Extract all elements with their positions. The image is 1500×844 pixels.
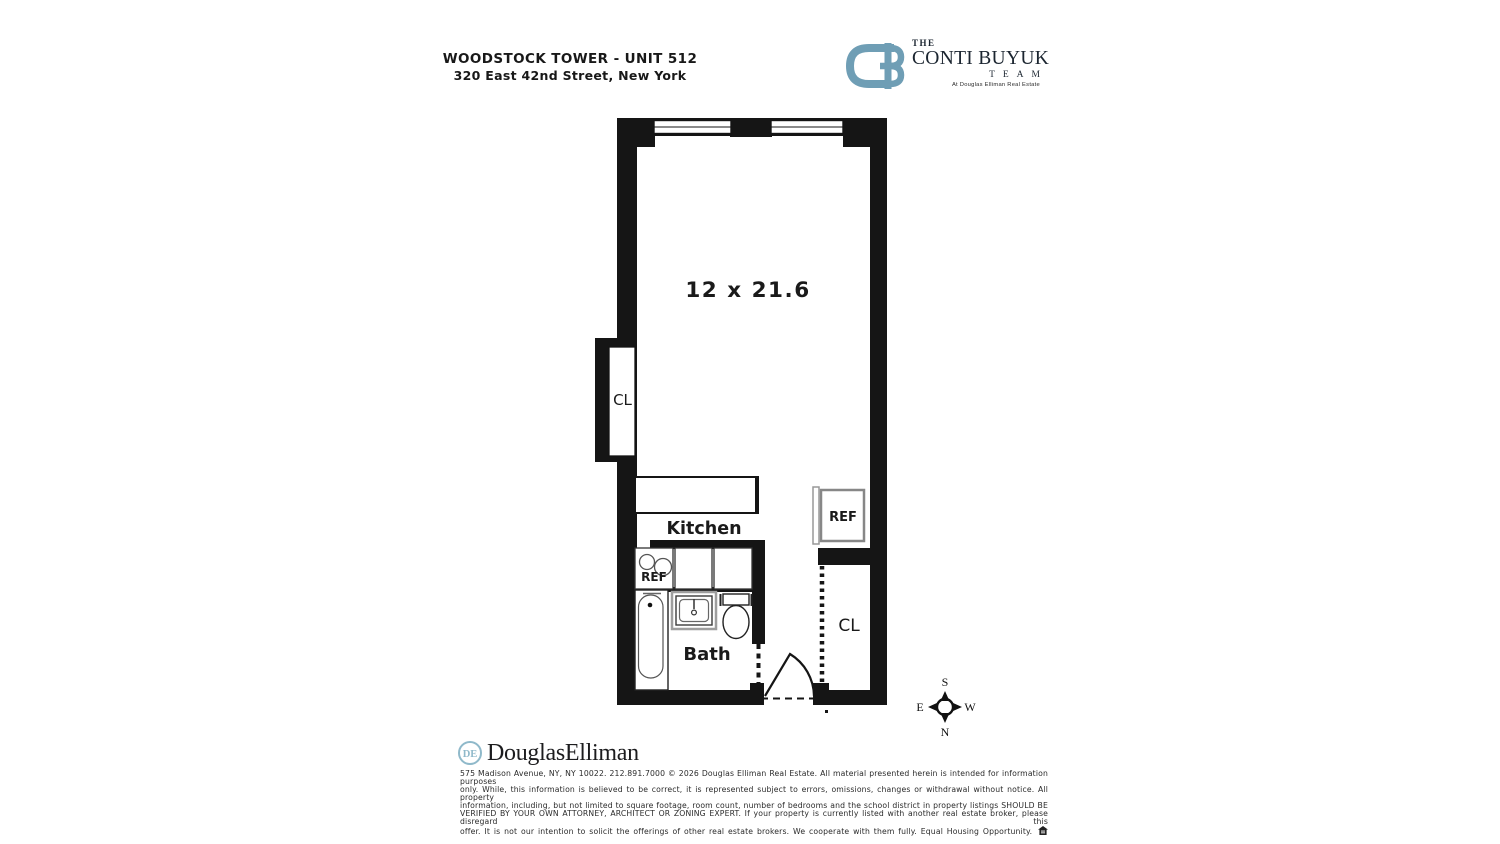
disclaimer-line: only. While, this information is believe… (460, 786, 1048, 802)
equal-housing-icon (1038, 826, 1048, 835)
closet-right-label: CL (838, 616, 860, 636)
compass-rose-icon: S N E W (903, 666, 991, 754)
de-monogram-icon: DE (457, 740, 483, 766)
brand-name: CONTI BUYUK (912, 48, 1040, 69)
brand-team: TEAM (912, 70, 1048, 80)
cb-monogram-icon (843, 38, 907, 94)
de-wordmark: DouglasElliman (487, 740, 639, 766)
room-dimension-label: 12 x 21.6 (685, 278, 810, 303)
bathtub-icon (635, 590, 668, 690)
disclaimer-line: offer. It is not our intention to solici… (460, 826, 1048, 836)
brand-the: THE (912, 38, 1040, 48)
refrigerator-label: REF (829, 510, 857, 525)
kitchen-label: Kitchen (666, 519, 741, 539)
brand-text: THE CONTI BUYUK TEAM At Douglas Elliman … (912, 38, 1040, 88)
floorplan-drawing: 12 x 21.6 CL Kitchen REF REF Bath CL (595, 110, 895, 720)
kitchen-counter-icon (635, 476, 757, 514)
disclaimer: 575 Madison Avenue, NY, NY 10022. 212.89… (460, 770, 1048, 836)
disclaimer-line: 575 Madison Avenue, NY, NY 10022. 212.89… (460, 770, 1048, 786)
de-monogram-text: DE (463, 749, 478, 760)
compass-left-label: E (916, 700, 923, 714)
floorplan-sheet: { "header": { "building": "WOODSTOCK TOW… (0, 0, 1500, 844)
kitchen-ref-label: REF (641, 570, 667, 584)
disclaimer-line: VERIFIED BY YOUR OWN ATTORNEY, ARCHITECT… (460, 810, 1048, 826)
closet-left-label: CL (613, 391, 632, 409)
compass-bottom-label: N (941, 725, 950, 739)
building-title: WOODSTOCK TOWER - UNIT 512 (420, 51, 720, 67)
bath-label: Bath (683, 644, 730, 665)
compass-right-label: W (964, 700, 976, 714)
disclaimer-line-text: offer. It is not our intention to solici… (460, 827, 1032, 836)
sink-icon (672, 592, 716, 629)
douglas-elliman-logo: DE DouglasElliman (457, 739, 639, 767)
compass-top-label: S (942, 675, 949, 689)
building-address: 320 East 42nd Street, New York (420, 68, 720, 83)
header: WOODSTOCK TOWER - UNIT 512 320 East 42nd… (420, 51, 720, 83)
conti-buyuk-logo: THE CONTI BUYUK TEAM At Douglas Elliman … (843, 36, 1043, 94)
brand-tagline: At Douglas Elliman Real Estate (912, 82, 1040, 88)
toilet-icon (721, 594, 752, 639)
entry-door-swing-icon (765, 654, 814, 696)
